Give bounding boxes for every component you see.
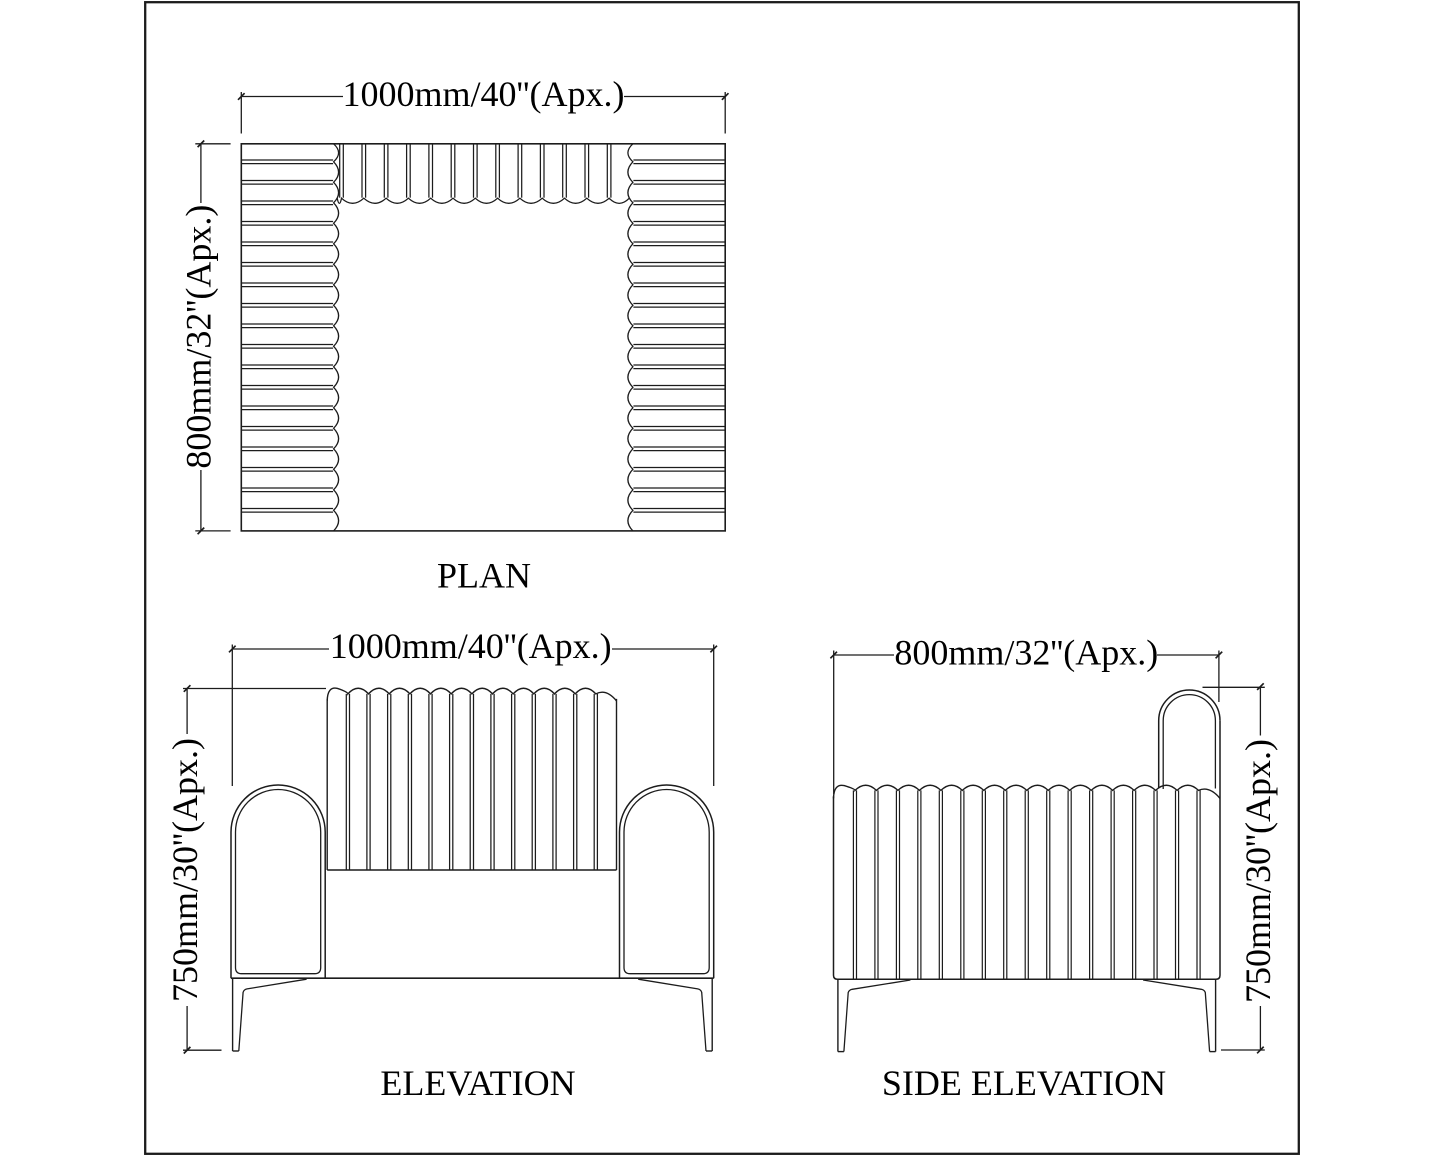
svg-text:1000mm/40''(Apx.): 1000mm/40''(Apx.)	[343, 74, 625, 114]
svg-text:PLAN: PLAN	[437, 555, 531, 595]
svg-text:ELEVATION: ELEVATION	[380, 1063, 575, 1103]
svg-text:1000mm/40''(Apx.): 1000mm/40''(Apx.)	[330, 626, 612, 666]
svg-text:SIDE ELEVATION: SIDE ELEVATION	[882, 1063, 1166, 1103]
svg-text:750mm/30''(Apx.): 750mm/30''(Apx.)	[165, 738, 205, 1002]
svg-text:750mm/30''(Apx.): 750mm/30''(Apx.)	[1238, 739, 1278, 1003]
svg-text:800mm/32''(Apx.): 800mm/32''(Apx.)	[894, 632, 1158, 672]
svg-text:800mm/32''(Apx.): 800mm/32''(Apx.)	[179, 205, 219, 469]
